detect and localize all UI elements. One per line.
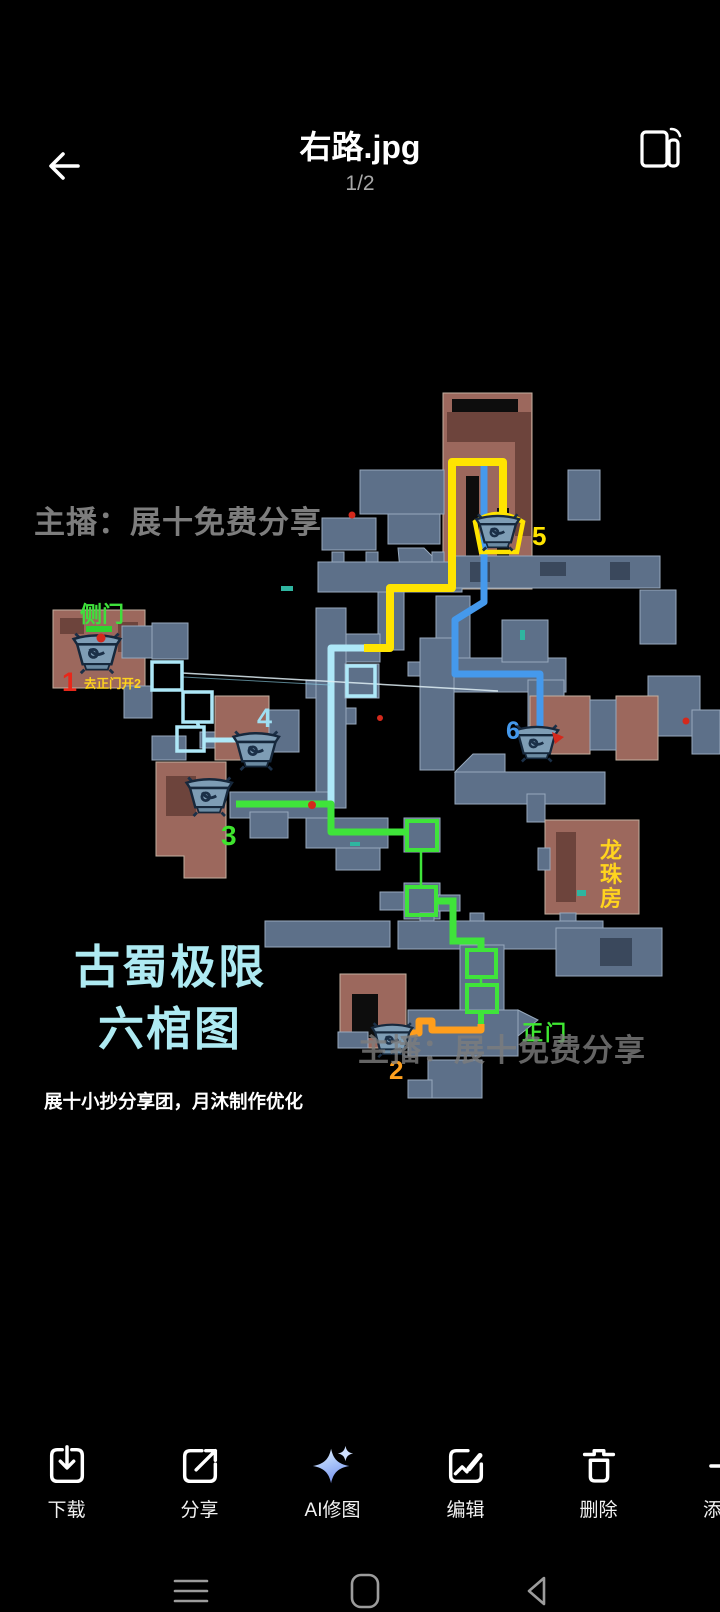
label-side-door: 侧门 (80, 602, 124, 627)
coffin-icon-6 (515, 725, 558, 761)
page-title: 右路.jpg (0, 122, 720, 168)
page-indicator: 1/2 (0, 172, 720, 196)
header-bar: 右路.jpg 1/2 (0, 0, 720, 230)
add-to-icon (709, 1443, 720, 1489)
back-icon[interactable] (524, 1574, 552, 1608)
delete-button[interactable]: 删除 (532, 1443, 665, 1522)
add-to-button[interactable]: 添加到 (665, 1443, 720, 1522)
label-dragon-room: 龙 珠 房 (600, 838, 623, 911)
rotate-device-icon[interactable] (638, 118, 686, 178)
edit-label: 编辑 (446, 1495, 484, 1522)
home-icon[interactable] (348, 1572, 382, 1610)
map-big-title-line2: 六棺图 (98, 1003, 242, 1055)
map-credit-line: 展十小抄分享团，月沐制作优化 (44, 1091, 304, 1112)
ai-retouch-label: AI修图 (305, 1495, 361, 1522)
marker-1: 1 (62, 667, 77, 697)
coffin-icon-4 (234, 732, 280, 771)
share-button[interactable]: 分享 (133, 1443, 266, 1522)
marker-3: 3 (221, 820, 237, 851)
menu-icon[interactable] (171, 1576, 211, 1608)
marker-5: 5 (532, 521, 546, 551)
android-nav-bar (0, 1570, 720, 1612)
screen: { "header": { "title": "右路.jpg", "page_i… (0, 0, 720, 1612)
svg-text:珠: 珠 (600, 862, 623, 887)
edit-image-icon (443, 1443, 489, 1489)
svg-text:龙: 龙 (600, 838, 622, 863)
download-icon (44, 1443, 90, 1489)
download-button[interactable]: 下载 (0, 1443, 133, 1522)
delete-icon (576, 1443, 622, 1489)
marker-1-note: 去正门开2 (84, 676, 141, 691)
marker-6: 6 (506, 717, 520, 745)
photo-map-image[interactable]: 主播：展十免费分享 侧门 1 去正门开2 4 3 5 6 2 正门 龙 珠 房 … (0, 380, 720, 1120)
add-to-label: 添加到 (703, 1495, 720, 1522)
marker-4: 4 (257, 703, 272, 733)
game-map: 主播：展十免费分享 侧门 1 去正门开2 4 3 5 6 2 正门 龙 珠 房 … (0, 380, 720, 1120)
share-label: 分享 (180, 1495, 218, 1522)
action-toolbar: 下载 分享 AI修图 (0, 1443, 720, 1522)
download-label: 下载 (47, 1495, 85, 1522)
ai-retouch-button[interactable]: AI修图 (266, 1443, 399, 1522)
ai-sparkle-icon (310, 1443, 356, 1489)
edit-button[interactable]: 编辑 (399, 1443, 532, 1522)
share-icon (177, 1443, 223, 1489)
map-big-title-line1: 古蜀极限 (74, 941, 266, 993)
delete-label: 删除 (579, 1495, 617, 1522)
watermark-top: 主播：展十免费分享 (34, 505, 322, 540)
watermark-bottom: 主播：展十免费分享 (358, 1033, 646, 1068)
svg-text:房: 房 (600, 886, 622, 911)
